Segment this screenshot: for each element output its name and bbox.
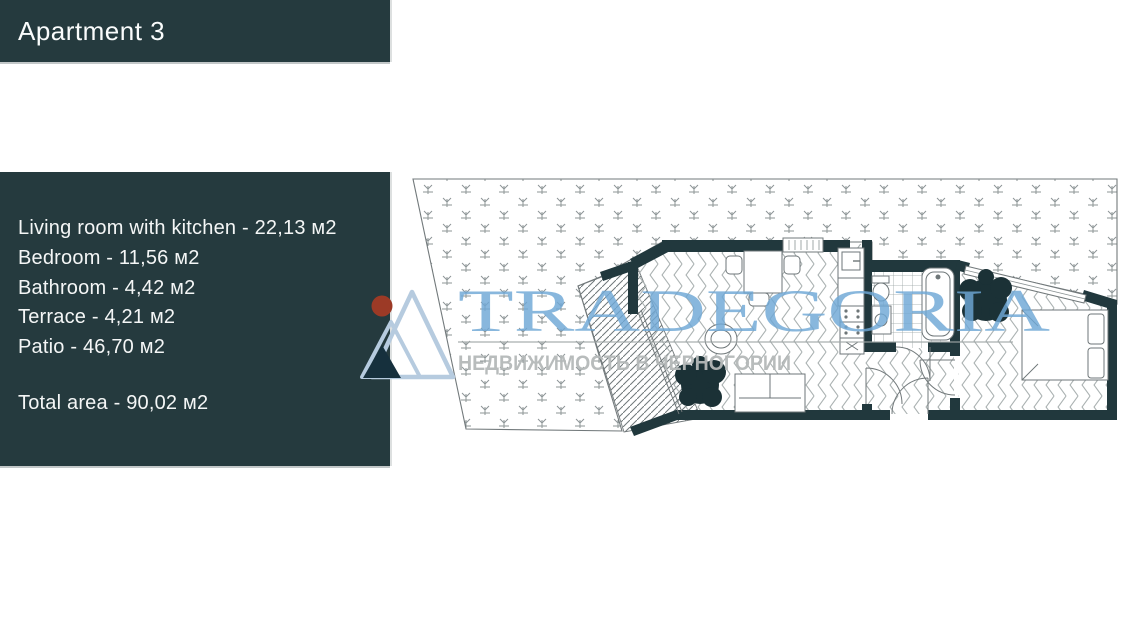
list-item: Bathroom - 4,42 м2 xyxy=(18,274,337,304)
chair xyxy=(749,293,769,306)
pillow xyxy=(1088,348,1104,378)
hallway-area xyxy=(870,348,954,414)
chair xyxy=(784,256,800,274)
toilet xyxy=(872,276,889,283)
total-area-label: Total area - 90,02 м2 xyxy=(18,392,208,415)
dining-table xyxy=(744,251,782,293)
apartment-header-panel: Apartment 3 xyxy=(0,0,390,62)
area-info-panel: Living room with kitchen - 22,13 м2 Bedr… xyxy=(0,172,390,466)
pillow xyxy=(1088,314,1104,344)
floor-plan xyxy=(400,170,1140,460)
list-item: Living room with kitchen - 22,13 м2 xyxy=(18,214,337,244)
apartment-title: Apartment 3 xyxy=(18,0,165,62)
kitchen-units xyxy=(838,248,864,354)
list-item: Terrace - 4,21 м2 xyxy=(18,303,337,333)
room-area-list: Living room with kitchen - 22,13 м2 Bedr… xyxy=(18,214,337,363)
chair xyxy=(726,256,742,274)
toilet-bowl xyxy=(873,283,889,301)
list-item: Bedroom - 11,56 м2 xyxy=(18,244,337,274)
list-item: Patio - 46,70 м2 xyxy=(18,333,337,363)
bed xyxy=(1022,310,1108,380)
